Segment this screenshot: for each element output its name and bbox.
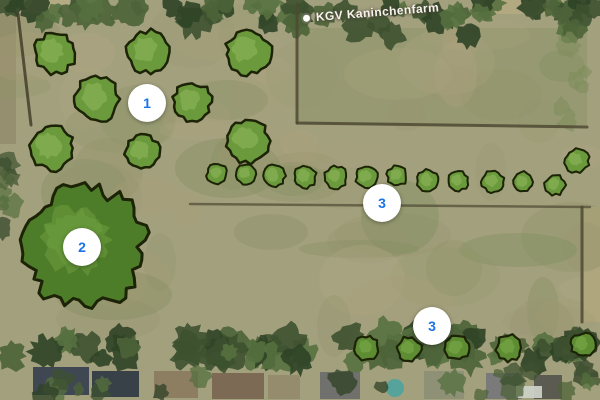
pool: [386, 379, 404, 397]
satellite-imagery-layer: [0, 0, 600, 400]
map-marker-3b[interactable]: 3: [413, 307, 451, 345]
map-marker-1[interactable]: 1: [128, 84, 166, 122]
place-dot-icon: [303, 14, 311, 22]
map-marker-2[interactable]: 2: [63, 228, 101, 266]
map-marker-3[interactable]: 3: [363, 184, 401, 222]
map-canvas[interactable]: KGV Kaninchenfarm 1233: [0, 0, 600, 400]
